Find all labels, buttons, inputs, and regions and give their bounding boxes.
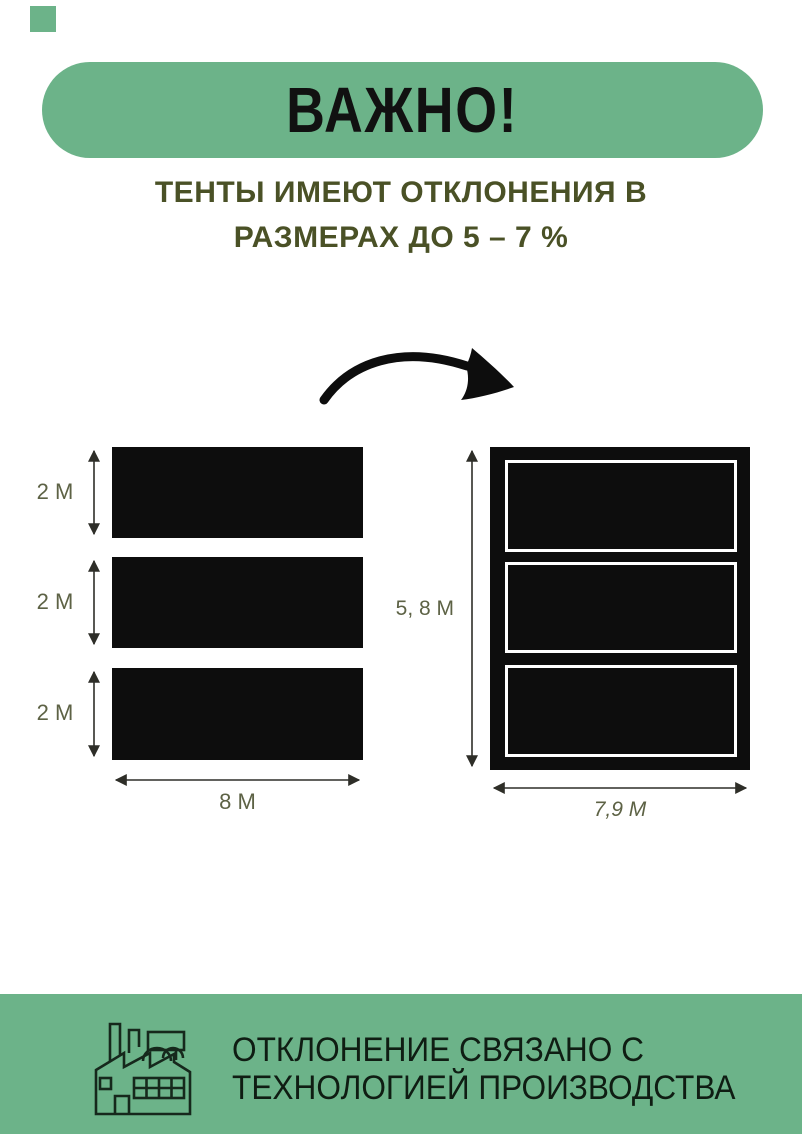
sewn-panel-outline-1 xyxy=(505,460,737,552)
subtitle-line-1: ТЕНТЫ ИМЕЮТ ОТКЛОНЕНИЯ В xyxy=(0,170,802,215)
subtitle-line-2: РАЗМЕРАХ ДО 5 – 7 % xyxy=(0,215,802,260)
sewn-panel-outline-2 xyxy=(505,562,737,653)
right-height-label: 5, 8 М xyxy=(360,597,454,621)
corner-accent-square xyxy=(30,6,56,32)
tarp-panel-3 xyxy=(112,668,363,760)
panel-height-label-1: 2 М xyxy=(25,479,85,505)
panel-height-label-3: 2 М xyxy=(25,700,85,726)
factory-icon xyxy=(88,1016,198,1116)
sewn-panel-outline-3 xyxy=(505,665,737,757)
subtitle: ТЕНТЫ ИМЕЮТ ОТКЛОНЕНИЯ В РАЗМЕРАХ ДО 5 –… xyxy=(0,170,802,260)
left-width-label: 8 М xyxy=(112,789,363,815)
footer-line-1: ОТКЛОНЕНИЕ СВЯЗАНО С xyxy=(232,1031,736,1069)
assembled-tent xyxy=(490,447,750,770)
footer-line-2: ТЕХНОЛОГИЕЙ ПРОИЗВОДСТВА xyxy=(232,1069,736,1107)
footer-text: ОТКЛОНЕНИЕ СВЯЗАНО С ТЕХНОЛОГИЕЙ ПРОИЗВО… xyxy=(232,1031,736,1107)
tarp-panel-1 xyxy=(112,447,363,538)
infographic-page: ВАЖНО! ТЕНТЫ ИМЕЮТ ОТКЛОНЕНИЯ В РАЗМЕРАХ… xyxy=(0,0,802,1134)
right-width-label: 7,9 М xyxy=(490,798,750,822)
page-title: ВАЖНО! xyxy=(286,73,518,147)
tarp-panel-2 xyxy=(112,557,363,648)
panel-height-label-2: 2 М xyxy=(25,589,85,615)
footer-bar: ОТКЛОНЕНИЕ СВЯЗАНО С ТЕХНОЛОГИЕЙ ПРОИЗВО… xyxy=(0,994,802,1134)
important-banner: ВАЖНО! xyxy=(42,62,763,158)
curved-arrow-icon xyxy=(324,348,514,400)
